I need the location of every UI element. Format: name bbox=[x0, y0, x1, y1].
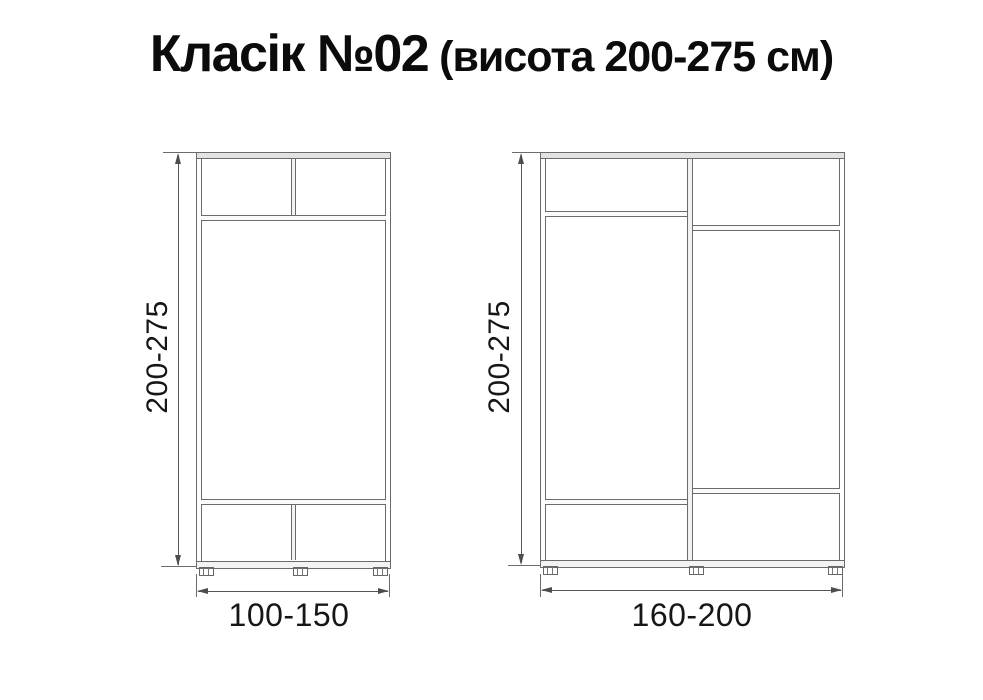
wardrobe-dimensions-page: Класік №02 (висота 200-275 см) 200-275 bbox=[0, 0, 983, 700]
width-dim-left-extension bbox=[540, 574, 541, 597]
height-dim-bottom-tick bbox=[161, 566, 196, 567]
width-dimension-line bbox=[198, 591, 388, 592]
width-dim-right-extension bbox=[842, 574, 843, 597]
dimension-arrow-down bbox=[518, 554, 524, 565]
dimension-arrow-left bbox=[541, 587, 552, 593]
dimension-arrow-right bbox=[831, 587, 842, 593]
dimension-arrow-down bbox=[175, 555, 181, 566]
foot bbox=[199, 567, 214, 576]
height-dim-bottom-tick bbox=[508, 565, 540, 566]
small-wardrobe-frame bbox=[196, 152, 391, 569]
right-column-lower-shelf bbox=[693, 488, 840, 494]
page-title-suffix: (висота 200-275 см) bbox=[428, 33, 833, 81]
width-dimension-label: 100-150 bbox=[229, 597, 350, 634]
large-wardrobe-frame bbox=[540, 152, 845, 568]
height-dimension-line bbox=[521, 155, 522, 563]
foot bbox=[689, 566, 704, 575]
lower-compartment-divider bbox=[291, 505, 296, 560]
width-dimension-label: 160-200 bbox=[632, 597, 753, 634]
dimension-arrow-up bbox=[518, 153, 524, 164]
upper-shelf bbox=[201, 215, 386, 221]
foot bbox=[543, 566, 558, 575]
foot bbox=[293, 567, 308, 576]
left-column-upper-shelf bbox=[545, 211, 687, 217]
foot bbox=[373, 567, 388, 576]
page-title: Класік №02 (висота 200-275 см) bbox=[0, 24, 983, 84]
dimension-arrow-right bbox=[378, 588, 389, 594]
foot bbox=[828, 566, 843, 575]
page-title-main: Класік №02 bbox=[150, 25, 428, 83]
center-divider bbox=[687, 159, 693, 560]
dimension-arrow-left bbox=[197, 588, 208, 594]
height-dimension-line bbox=[178, 155, 179, 565]
right-column-upper-shelf bbox=[693, 225, 840, 231]
height-dim-top-tick bbox=[512, 152, 540, 153]
upper-compartment-divider bbox=[291, 159, 296, 216]
right-side-wall bbox=[839, 159, 840, 560]
width-dimension-line bbox=[542, 590, 841, 591]
dimension-arrow-up bbox=[175, 153, 181, 164]
width-dim-right-extension bbox=[389, 574, 390, 597]
left-column-lower-shelf bbox=[545, 499, 687, 505]
